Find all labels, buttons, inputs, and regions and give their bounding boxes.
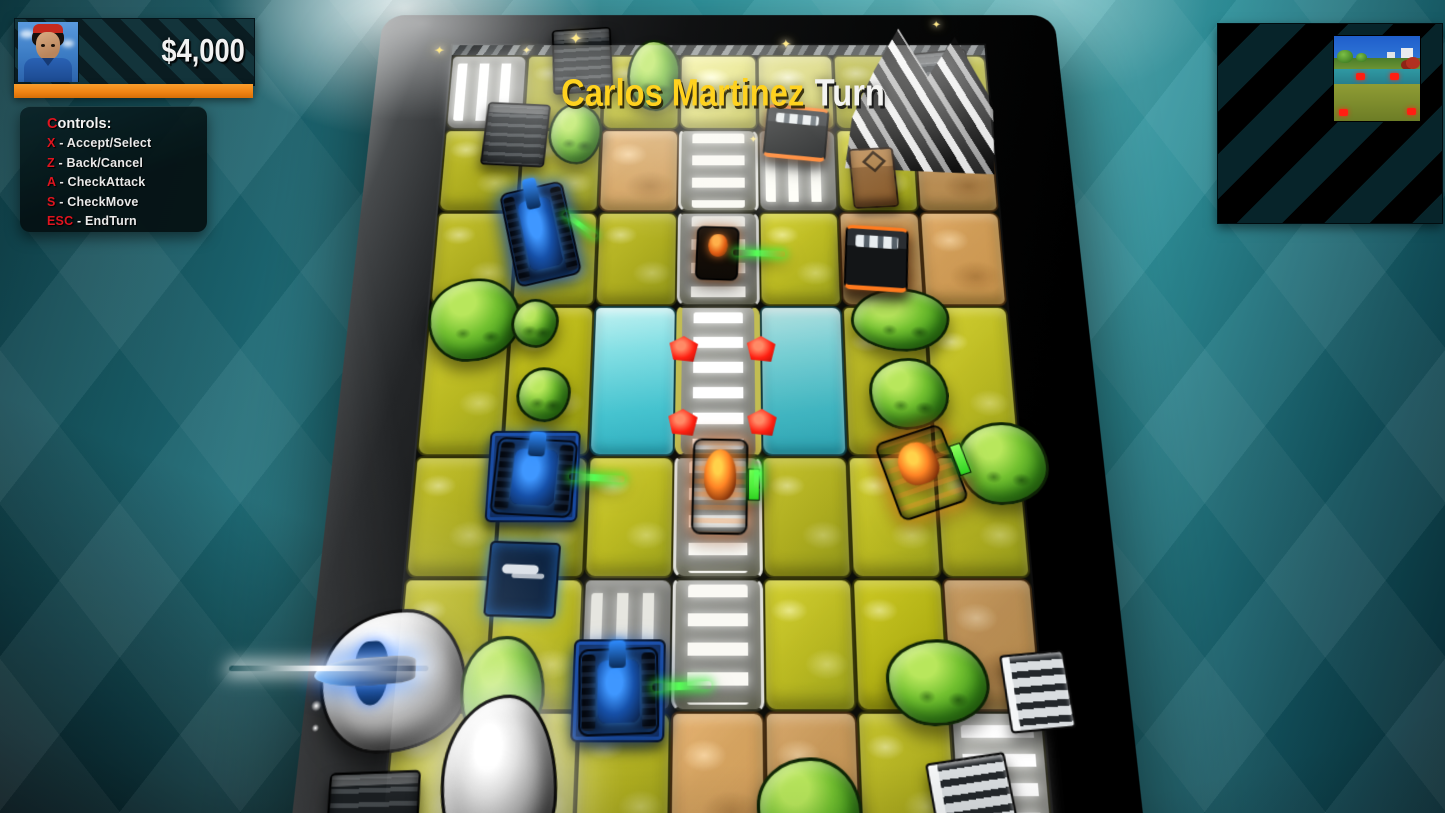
crate-marking <box>501 564 539 575</box>
tile-dirt[interactable] <box>598 130 679 212</box>
tile-grass[interactable] <box>758 212 842 306</box>
controls-heading-rest: ontrols: <box>57 116 111 132</box>
player-money-panel: $4,000 <box>14 18 255 86</box>
orange-tank[interactable] <box>691 438 748 535</box>
tile-dirt[interactable] <box>669 712 765 813</box>
tile-dirt[interactable] <box>919 212 1007 306</box>
controls-list: X - Accept/SelectZ - Back/CancelA - Chec… <box>47 134 207 232</box>
controls-heading: Controls: <box>47 115 207 134</box>
controls-item: A - CheckAttack <box>47 173 207 193</box>
preview-red-flag <box>1356 73 1365 80</box>
rider <box>707 234 727 257</box>
dark-crate <box>324 770 421 813</box>
gray-container <box>999 650 1077 734</box>
sparkle-icon: ✦ <box>433 44 445 58</box>
board-field: ✦✦✦✦✦✦ <box>364 45 1070 813</box>
target-laser <box>754 461 762 489</box>
blue-tank[interactable] <box>489 437 578 519</box>
jet-body <box>314 655 416 690</box>
tile-water[interactable] <box>589 306 677 456</box>
turn-banner: Carlos MartinezTurn <box>561 72 885 116</box>
preview-red-flag <box>1390 73 1399 80</box>
money-accent-bar <box>14 84 253 98</box>
controls-item: Z - Back/Cancel <box>47 154 207 174</box>
tile-info-panel <box>1217 23 1443 224</box>
controls-heading-initial: C <box>47 116 57 132</box>
supply-crate <box>848 147 899 209</box>
tank-turret <box>527 432 546 457</box>
key-label: ESC <box>47 214 73 228</box>
glow-dot <box>311 724 319 732</box>
tile-road[interactable] <box>671 578 764 711</box>
orange-scout[interactable] <box>695 226 740 281</box>
gray-container <box>925 752 1020 813</box>
controls-help-panel: Controls: X - Accept/SelectZ - Back/Canc… <box>20 106 207 232</box>
preview-red-flag <box>1407 108 1416 115</box>
preview-tree <box>1337 50 1352 64</box>
avatar-eye <box>51 44 55 47</box>
blue-crate <box>483 541 561 619</box>
cloud-decoration <box>62 40 74 47</box>
money-amount: $4,000 <box>162 32 245 70</box>
tile-grass[interactable] <box>594 212 678 306</box>
key-label: X <box>47 136 56 150</box>
key-label: A <box>47 175 56 189</box>
preview-red-flag <box>1339 109 1348 116</box>
game-screen: ✦✦✦✦✦✦ Carlos MartinezTurn $4,000 Contro… <box>0 0 1445 813</box>
key-label: S <box>47 195 56 209</box>
orange-truck[interactable] <box>844 224 909 292</box>
avatar-face <box>36 32 60 60</box>
sparkle-icon: ✦ <box>931 19 941 31</box>
blue-jet[interactable] <box>300 635 429 713</box>
key-label: Z <box>47 156 55 170</box>
dark-crate <box>480 102 551 168</box>
tile-grass[interactable] <box>761 456 852 578</box>
tile-grid: ✦✦✦✦✦✦ <box>364 55 1070 813</box>
tile-grass[interactable] <box>763 578 857 711</box>
controls-item: ESC - EndTurn <box>47 212 207 232</box>
board-slab: ✦✦✦✦✦✦ <box>251 15 1183 813</box>
turn-player-name: Carlos Martinez <box>561 72 804 115</box>
avatar-eye <box>41 44 45 47</box>
bridge-tile-preview-image <box>1333 35 1421 122</box>
controls-item: X - Accept/Select <box>47 134 207 154</box>
tank-turret <box>609 640 626 668</box>
tile-road[interactable] <box>678 130 758 212</box>
turn-suffix: Turn <box>814 72 884 115</box>
tank-hull <box>509 448 558 506</box>
tank-hull <box>597 659 640 724</box>
tank-track <box>582 654 596 731</box>
player-avatar <box>18 22 79 82</box>
game-board: ✦✦✦✦✦✦ <box>251 15 1183 813</box>
truck-windshield <box>855 234 898 249</box>
blue-tank[interactable] <box>578 647 659 737</box>
tank-hull <box>704 449 736 500</box>
crate-emblem <box>862 151 886 173</box>
tank-hull <box>891 437 944 490</box>
controls-item: S - CheckMove <box>47 193 207 213</box>
